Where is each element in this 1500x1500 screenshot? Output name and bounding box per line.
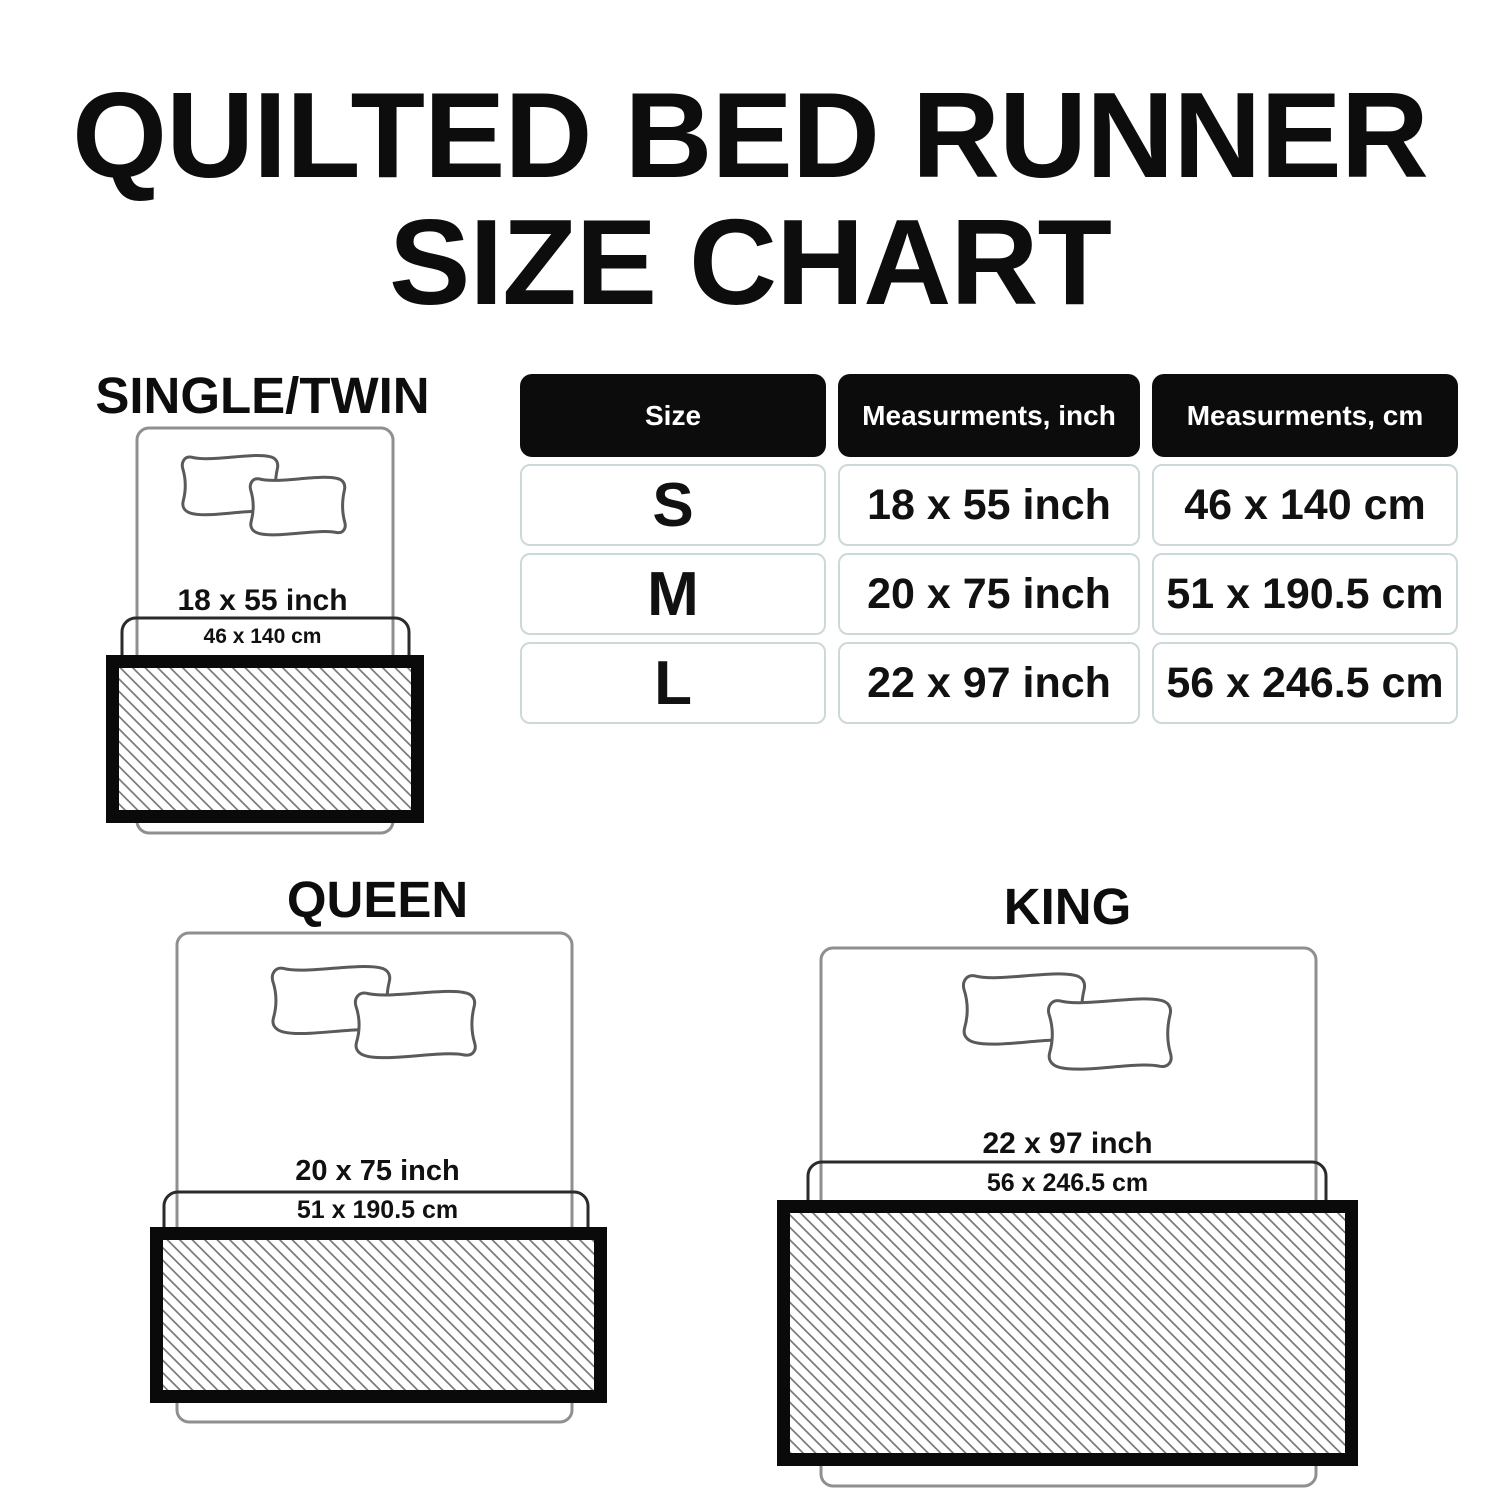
runner-swatch xyxy=(157,1234,601,1397)
dimension-cm-label: 51 x 190.5 cm xyxy=(140,1197,615,1223)
table-cell-s-size: S xyxy=(520,464,826,546)
table-cell-s-cm: 46 x 140 cm xyxy=(1152,464,1458,546)
diagram-king-title: KING xyxy=(765,878,1370,936)
size-table: Size Measurments, inch Measurments, cm S… xyxy=(520,374,1458,724)
page-title-line-2: SIZE CHART xyxy=(0,199,1500,326)
dimension-inch-label: 18 x 55 inch xyxy=(85,586,440,616)
table-header-size: Size xyxy=(520,374,826,457)
page-title-line-1: QUILTED BED RUNNER xyxy=(0,72,1500,199)
pillow-front-icon xyxy=(1049,999,1172,1069)
table-cell-s-inch: 18 x 55 inch xyxy=(838,464,1140,546)
table-cell-l-size: L xyxy=(520,642,826,724)
runner-swatch xyxy=(784,1207,1352,1460)
pillow-front-icon xyxy=(355,991,475,1057)
table-cell-m-size: M xyxy=(520,553,826,635)
table-cell-m-inch: 20 x 75 inch xyxy=(838,553,1140,635)
table-cell-m-cm: 51 x 190.5 cm xyxy=(1152,553,1458,635)
runner-swatch xyxy=(113,662,418,817)
infographic-canvas: QUILTED BED RUNNER SIZE CHART Size Measu… xyxy=(0,0,1500,1500)
table-cell-l-inch: 22 x 97 inch xyxy=(838,642,1140,724)
dimension-inch-label: 20 x 75 inch xyxy=(140,1156,615,1186)
table-header-inch: Measurments, inch xyxy=(838,374,1140,457)
diagram-king: KING 22 x 97 inch 56 x 246.5 cm xyxy=(765,878,1370,1492)
dimension-inch-label: 22 x 97 inch xyxy=(765,1129,1370,1159)
table-header-cm: Measurments, cm xyxy=(1152,374,1458,457)
diagram-queen: QUEEN 20 x 75 inch 51 x 190.5 cm xyxy=(140,871,615,1431)
bed-illustration-king xyxy=(765,940,1370,1492)
dimension-cm-label: 56 x 246.5 cm xyxy=(765,1170,1370,1196)
diagram-queen-title: QUEEN xyxy=(140,871,615,929)
diagram-single-twin: SINGLE/TWIN 18 x 55 inch 46 x 140 cm xyxy=(85,367,440,847)
diagram-single-twin-title: SINGLE/TWIN xyxy=(85,367,440,425)
pillow-front-icon xyxy=(250,477,345,535)
table-cell-l-cm: 56 x 246.5 cm xyxy=(1152,642,1458,724)
page-title: QUILTED BED RUNNER SIZE CHART xyxy=(0,72,1500,326)
dimension-cm-label: 46 x 140 cm xyxy=(85,624,440,649)
